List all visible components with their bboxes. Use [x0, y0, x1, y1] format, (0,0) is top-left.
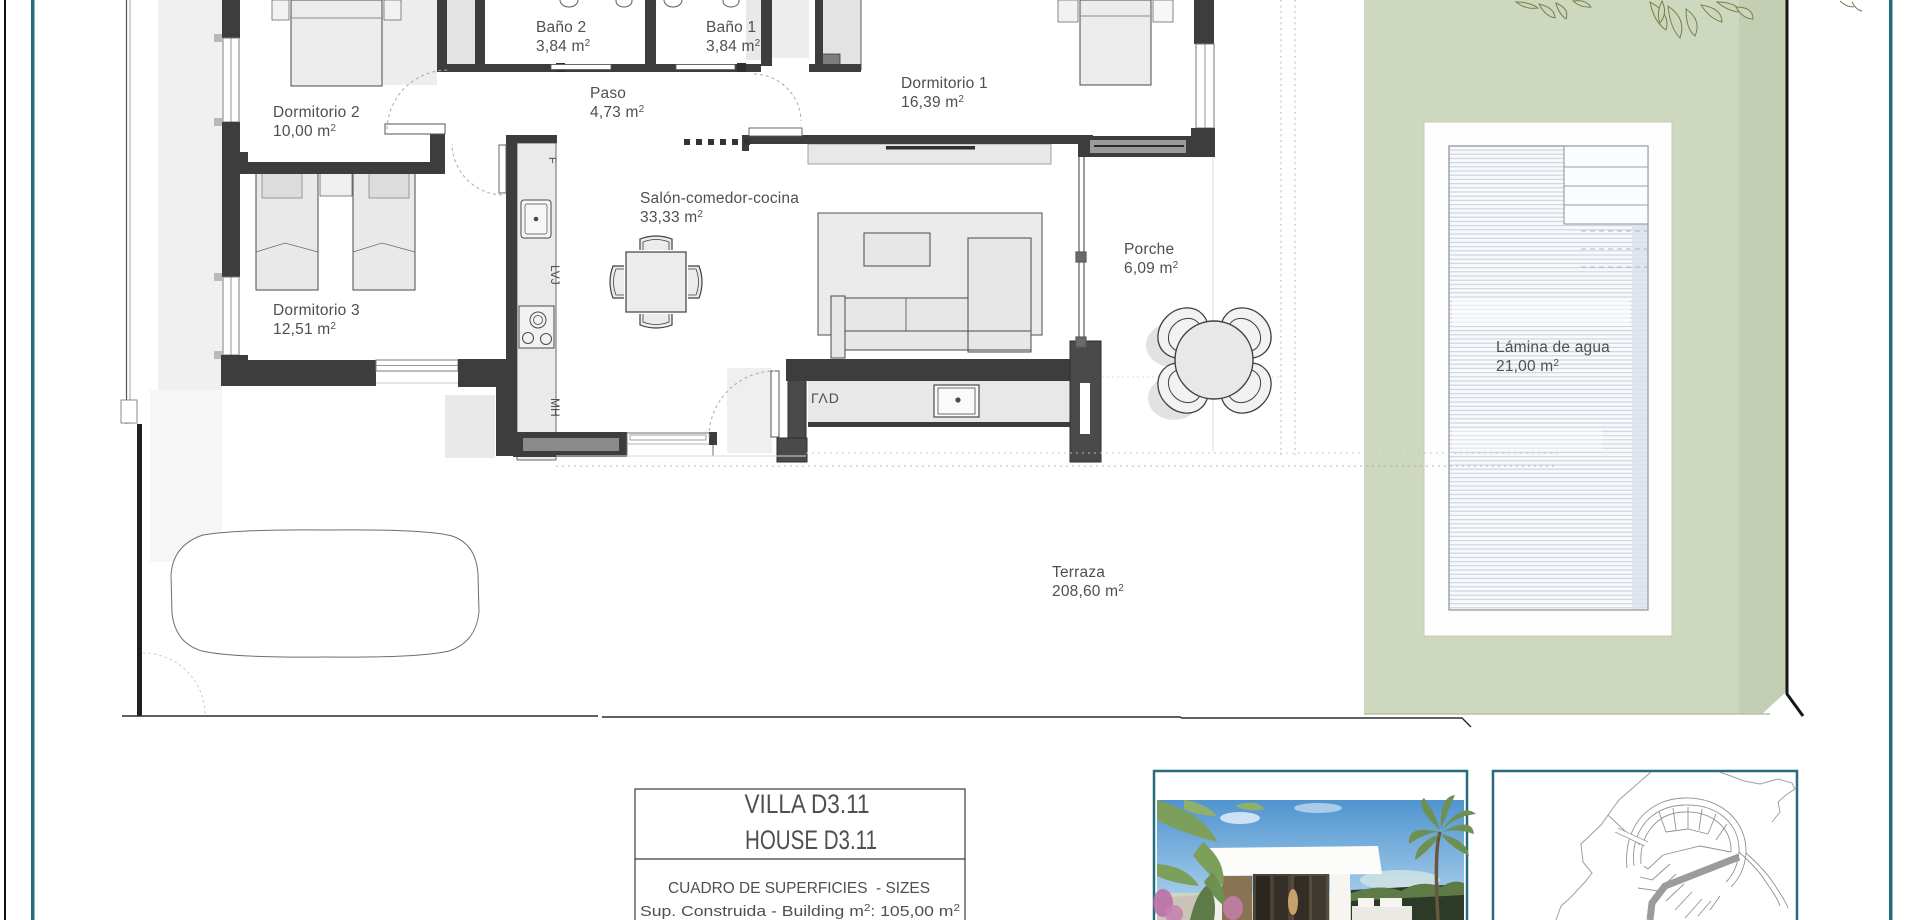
svg-text:3,84 m2: 3,84 m2	[536, 38, 591, 55]
svg-text:6,09 m2: 6,09 m2	[1124, 260, 1179, 277]
svg-text:Porche: Porche	[1124, 241, 1174, 258]
svg-text:16,39 m2: 16,39 m2	[901, 94, 964, 111]
svg-text:Lámina de agua: Lámina de agua	[1496, 339, 1610, 356]
svg-text:MH: MH	[548, 398, 562, 417]
svg-text:CUADRO DE SUPERFICIES - SIZES: CUADRO DE SUPERFICIES - SIZES	[668, 880, 930, 897]
svg-text:Baño 2: Baño 2	[536, 19, 586, 36]
svg-text:LVJ: LVJ	[548, 265, 562, 285]
svg-text:Dormitorio 3: Dormitorio 3	[273, 302, 360, 319]
svg-text:Salón-comedor-cocina: Salón-comedor-cocina	[640, 190, 799, 207]
svg-text:4,73 m2: 4,73 m2	[590, 104, 645, 121]
svg-text:10,00 m2: 10,00 m2	[273, 123, 336, 140]
svg-text:33,33 m2: 33,33 m2	[640, 209, 703, 226]
svg-text:Dormitorio 2: Dormitorio 2	[273, 104, 360, 121]
svg-text:208,60 m2: 208,60 m2	[1052, 583, 1124, 600]
svg-text:Terraza: Terraza	[1052, 564, 1105, 581]
svg-text:3,84 m2: 3,84 m2	[706, 38, 761, 55]
svg-text:21,00 m2: 21,00 m2	[1496, 358, 1559, 375]
svg-text:VILLA D3.11: VILLA D3.11	[745, 789, 870, 819]
svg-text:ΓΛD: ΓΛD	[811, 390, 840, 406]
svg-text:Sup. Construida - Building m2: Sup. Construida - Building m2: 105,00 m2	[640, 903, 961, 920]
svg-text:Baño 1: Baño 1	[706, 19, 756, 36]
svg-text:HOUSE D3.11: HOUSE D3.11	[745, 825, 877, 855]
svg-text:12,51 m2: 12,51 m2	[273, 321, 336, 338]
svg-text:Paso: Paso	[590, 85, 626, 102]
svg-text:F: F	[546, 157, 558, 164]
svg-text:Dormitorio 1: Dormitorio 1	[901, 75, 988, 92]
